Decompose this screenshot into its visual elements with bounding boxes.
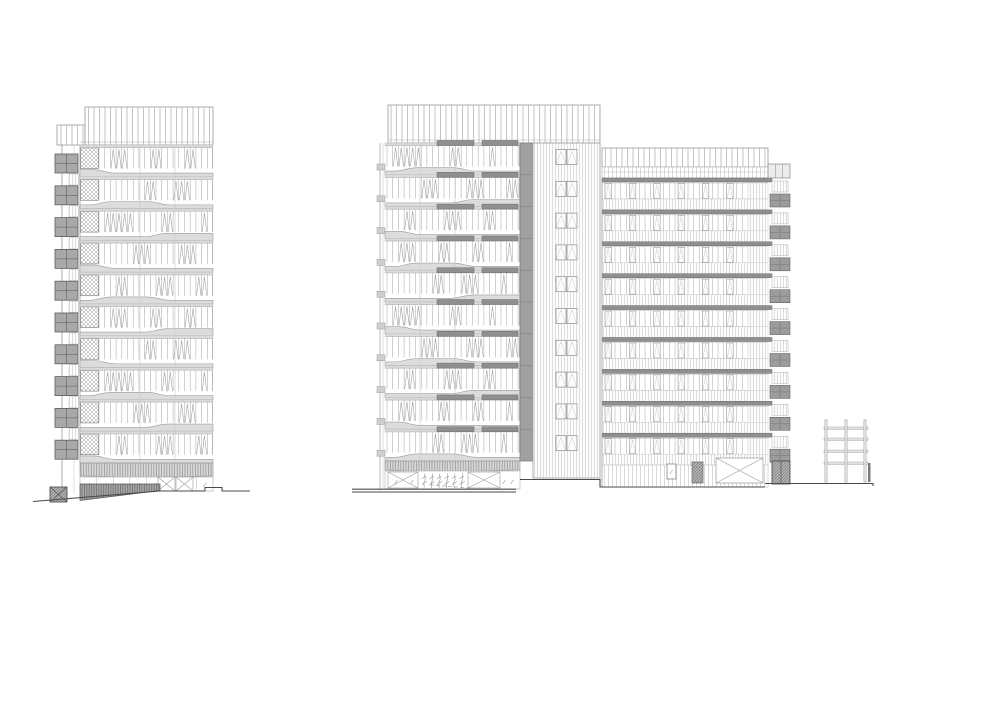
- vent-zigzag-mark: [128, 372, 133, 391]
- core-window: [556, 340, 566, 355]
- vent-zigzag-mark: [202, 213, 207, 232]
- interfloor-band: [602, 295, 768, 306]
- wavy-spandrel-band: [80, 233, 213, 240]
- vent-zigzag-mark: [450, 306, 455, 325]
- vent-zigzag-mark: [117, 308, 122, 327]
- edge-spandrel-strip: [772, 341, 788, 352]
- core-window: [556, 277, 566, 292]
- vent-zigzag-mark: [473, 179, 478, 198]
- vent-zigzag-mark: [479, 243, 484, 262]
- core-window: [556, 245, 566, 260]
- crosshatch-pier: [81, 148, 99, 169]
- floor-slab-line: [80, 431, 213, 433]
- floor-slab-line: [80, 368, 213, 370]
- side-spandrel-strip: [69, 397, 79, 408]
- dark-louver-bar: [437, 427, 474, 432]
- vent-zigzag-mark: [439, 275, 444, 294]
- core-window: [567, 150, 577, 165]
- vent-zigzag-mark: [168, 372, 173, 391]
- floor-slab-line: [80, 209, 213, 211]
- vent-zigzag-mark: [513, 338, 518, 357]
- end-pier: [748, 374, 768, 390]
- edge-tab: [377, 418, 385, 424]
- vent-zigzag-mark: [405, 402, 410, 421]
- core-window: [567, 404, 577, 419]
- dark-louver-bar: [437, 141, 474, 146]
- vent-zigzag-mark: [168, 436, 173, 455]
- vent-zigzag-mark: [117, 372, 122, 391]
- core-window: [556, 309, 566, 324]
- vent-zigzag-mark: [197, 436, 202, 455]
- vent-zigzag-mark: [410, 211, 415, 230]
- vent-zigzag-mark: [410, 370, 415, 389]
- dark-louver-bar: [482, 204, 518, 209]
- vent-zigzag-mark: [157, 308, 162, 327]
- vent-zigzag-mark: [405, 306, 410, 325]
- site-frame-structure: [824, 420, 871, 482]
- vent-zigzag-mark: [151, 149, 156, 168]
- vent-zigzag-mark: [399, 243, 404, 262]
- end-pier: [748, 311, 768, 327]
- frame-post: [845, 420, 847, 482]
- vent-zigzag-mark: [405, 243, 410, 262]
- dark-louver-bar: [437, 300, 474, 305]
- crosshatch-pier: [81, 243, 99, 264]
- vent-zigzag-mark: [399, 147, 404, 166]
- edge-spandrel-strip: [772, 245, 788, 256]
- vent-zigzag-mark: [111, 308, 116, 327]
- side-spandrel-strip: [69, 174, 79, 185]
- dark-louver-bar: [482, 427, 518, 432]
- core-window: [556, 181, 566, 196]
- edge-spandrel-strip: [772, 277, 788, 288]
- core-window: [556, 404, 566, 419]
- vent-zigzag-mark: [445, 370, 450, 389]
- dark-louver-bar: [437, 236, 474, 241]
- vent-zigzag-mark: [473, 338, 478, 357]
- vent-zigzag-mark: [122, 372, 127, 391]
- vent-zigzag-mark: [179, 340, 184, 359]
- vent-zigzag-mark: [467, 434, 472, 453]
- floor-slab-band: [602, 306, 772, 310]
- vent-zigzag-mark: [428, 179, 433, 198]
- dark-louver-bar: [437, 363, 474, 368]
- vent-zigzag-mark: [456, 370, 461, 389]
- vent-zigzag-mark: [393, 306, 398, 325]
- vent-zigzag-mark: [191, 404, 196, 423]
- vent-zigzag-mark: [197, 277, 202, 296]
- vent-zigzag-mark: [179, 404, 184, 423]
- dark-louver-bar: [437, 395, 474, 400]
- vent-zigzag-mark: [111, 372, 116, 391]
- vent-zigzag-mark: [456, 211, 461, 230]
- parapet-screen: [602, 148, 768, 167]
- service-door: [692, 462, 703, 483]
- vent-zigzag-mark: [410, 306, 415, 325]
- vent-zigzag-mark: [191, 308, 196, 327]
- floor-slab-band: [602, 401, 772, 405]
- vent-zigzag-mark: [179, 181, 184, 200]
- wavy-spandrel-band: [80, 170, 213, 177]
- vent-zigzag-mark: [507, 243, 512, 262]
- side-spandrel-strip: [69, 206, 79, 217]
- vent-zigzag-mark: [445, 402, 450, 421]
- interfloor-band: [602, 390, 768, 401]
- vent-zigzag-mark: [174, 181, 179, 200]
- core-window: [567, 309, 577, 324]
- core-window: [556, 436, 566, 451]
- vent-zigzag-mark: [479, 179, 484, 198]
- side-spandrel-strip: [69, 428, 79, 439]
- vent-zigzag-mark: [191, 149, 196, 168]
- crosshatch-pier: [81, 275, 99, 296]
- edge-tab: [377, 228, 385, 234]
- floor-slab-band: [602, 210, 772, 214]
- vent-zigzag-mark: [479, 338, 484, 357]
- vent-zigzag-mark: [117, 277, 122, 296]
- dark-louver-bar: [482, 172, 518, 177]
- vent-zigzag-mark: [134, 245, 139, 264]
- drawing-sheet: [0, 0, 1000, 707]
- vent-zigzag-mark: [117, 213, 122, 232]
- crosshatch-pier: [81, 402, 99, 423]
- interfloor-band: [602, 359, 768, 370]
- floor-slab-line: [80, 304, 213, 306]
- vent-zigzag-mark: [202, 436, 207, 455]
- left-tower-elevation: [50, 107, 213, 502]
- vent-zigzag-mark: [122, 277, 127, 296]
- core-window: [567, 181, 577, 196]
- vent-zigzag-mark: [162, 372, 167, 391]
- dark-louver-bar: [437, 331, 474, 336]
- vent-zigzag-mark: [405, 147, 410, 166]
- crosshatch-pier: [81, 370, 99, 391]
- interfloor-band: [602, 263, 768, 274]
- vent-zigzag-mark: [433, 179, 438, 198]
- vent-zigzag-mark: [122, 149, 127, 168]
- wavy-spandrel-band: [80, 392, 213, 399]
- wavy-spandrel-band: [80, 265, 213, 272]
- edge-spandrel-strip: [772, 372, 788, 383]
- middle-tower-elevation: [377, 105, 600, 489]
- core-window: [556, 213, 566, 228]
- vent-zigzag-mark: [151, 340, 156, 359]
- floor-slab-line: [80, 177, 213, 179]
- edge-tab: [377, 450, 385, 456]
- edge-tab: [377, 323, 385, 329]
- vent-zigzag-mark: [185, 245, 190, 264]
- end-pier: [748, 406, 768, 422]
- crosshatch-pier: [81, 339, 99, 360]
- crosshatch-pier: [81, 307, 99, 328]
- dark-louver-bar: [482, 268, 518, 273]
- crosshatch-pier: [81, 211, 99, 232]
- vent-zigzag-mark: [428, 338, 433, 357]
- floor-slab-band: [602, 338, 772, 342]
- vent-zigzag-mark: [162, 277, 167, 296]
- side-spandrel-strip: [69, 301, 79, 312]
- vent-zigzag-mark: [439, 402, 444, 421]
- vent-zigzag-mark: [433, 338, 438, 357]
- vent-zigzag-mark: [128, 213, 133, 232]
- elevation-canvas: [0, 0, 1000, 707]
- vent-zigzag-mark: [507, 179, 512, 198]
- vent-zigzag-mark: [405, 370, 410, 389]
- floor-slab-line: [80, 336, 213, 338]
- vent-zigzag-mark: [117, 149, 122, 168]
- end-pier: [748, 343, 768, 359]
- frame-dark-stub: [868, 463, 871, 482]
- vent-zigzag-mark: [122, 213, 127, 232]
- dark-louver-bar: [482, 141, 518, 146]
- vent-zigzag-mark: [185, 181, 190, 200]
- vent-zigzag-mark: [151, 181, 156, 200]
- top-edge-block: [768, 164, 790, 178]
- crosshatch-pier: [81, 180, 99, 201]
- interfloor-band: [602, 231, 768, 242]
- vent-zigzag-mark: [168, 277, 173, 296]
- dark-louver-bar: [437, 204, 474, 209]
- wavy-spandrel-band: [80, 424, 213, 431]
- dark-louver-bar: [482, 300, 518, 305]
- side-spandrel-strip: [69, 365, 79, 376]
- vent-zigzag-mark: [105, 213, 110, 232]
- side-spandrel-strip: [69, 269, 79, 280]
- core-window: [567, 372, 577, 387]
- vent-zigzag-mark: [456, 306, 461, 325]
- vent-zigzag-mark: [162, 436, 167, 455]
- vent-zigzag-mark: [174, 340, 179, 359]
- wavy-spandrel-band: [80, 361, 213, 368]
- side-spandrel-strip: [69, 238, 79, 249]
- wavy-spandrel-band: [80, 456, 213, 463]
- vent-zigzag-mark: [490, 211, 495, 230]
- vent-zigzag-mark: [485, 211, 490, 230]
- interfloor-band: [602, 327, 768, 338]
- vent-zigzag-mark: [473, 402, 478, 421]
- edge-tab: [377, 259, 385, 265]
- ground-line: [765, 484, 873, 487]
- rooftop-plant-screen: [85, 107, 213, 145]
- edge-tab: [377, 196, 385, 202]
- vent-zigzag-mark: [185, 308, 190, 327]
- vent-zigzag-mark: [473, 243, 478, 262]
- interfloor-band: [602, 199, 768, 210]
- frame-post: [864, 420, 866, 482]
- floor-slab-line: [80, 399, 213, 401]
- floor-slab-band: [602, 242, 772, 246]
- vent-zigzag-mark: [122, 308, 127, 327]
- vent-zigzag-mark: [151, 308, 156, 327]
- floor-slab-line: [80, 145, 213, 147]
- right-annex-elevation: [602, 148, 790, 487]
- parapet-sub-band: [602, 167, 768, 178]
- vent-zigzag-mark: [145, 245, 150, 264]
- end-pier: [748, 183, 768, 199]
- end-pier: [748, 247, 768, 263]
- vent-zigzag-mark: [422, 179, 427, 198]
- floor-slab-band: [602, 274, 772, 278]
- vent-zigzag-mark: [145, 340, 150, 359]
- edge-spandrel-strip: [772, 309, 788, 320]
- vent-zigzag-mark: [450, 211, 455, 230]
- vent-zigzag-mark: [467, 179, 472, 198]
- vent-zigzag-mark: [145, 404, 150, 423]
- vent-zigzag-mark: [162, 213, 167, 232]
- vent-zigzag-mark: [450, 147, 455, 166]
- vent-zigzag-mark: [467, 338, 472, 357]
- wavy-spandrel-band: [385, 454, 520, 461]
- edge-tab: [377, 164, 385, 170]
- core-window: [567, 213, 577, 228]
- wavy-spandrel-band: [80, 329, 213, 336]
- vent-zigzag-mark: [105, 372, 110, 391]
- vent-zigzag-mark: [490, 370, 495, 389]
- vent-zigzag-mark: [202, 372, 207, 391]
- vent-zigzag-mark: [485, 370, 490, 389]
- vent-zigzag-mark: [111, 149, 116, 168]
- floor-slab-line: [80, 240, 213, 242]
- rooftop-plant-screen: [388, 105, 600, 143]
- vent-zigzag-mark: [450, 370, 455, 389]
- dark-louver-bar: [482, 363, 518, 368]
- crosshatch-pier: [81, 434, 99, 455]
- frame-post: [825, 420, 827, 482]
- vent-zigzag-mark: [473, 275, 478, 294]
- vent-zigzag-mark: [502, 275, 507, 294]
- end-pier: [748, 279, 768, 295]
- vent-zigzag-mark: [479, 402, 484, 421]
- vent-zigzag-mark: [202, 277, 207, 296]
- vent-zigzag-mark: [168, 213, 173, 232]
- floor-slab-band: [602, 433, 772, 437]
- vent-zigzag-mark: [490, 147, 495, 166]
- dark-louver-bar: [437, 268, 474, 273]
- dark-louver-bar: [437, 172, 474, 177]
- vent-zigzag-mark: [111, 213, 116, 232]
- wavy-spandrel-band: [80, 297, 213, 304]
- end-pier: [748, 215, 768, 231]
- vent-zigzag-mark: [410, 243, 415, 262]
- vent-zigzag-mark: [445, 243, 450, 262]
- core-window: [567, 277, 577, 292]
- edge-spandrel-strip: [772, 436, 788, 447]
- core-window: [556, 150, 566, 165]
- vent-zigzag-mark: [179, 245, 184, 264]
- vent-zigzag-mark: [445, 211, 450, 230]
- vent-zigzag-mark: [507, 338, 512, 357]
- vent-zigzag-mark: [393, 147, 398, 166]
- vent-zigzag-mark: [473, 434, 478, 453]
- core-window: [567, 436, 577, 451]
- vent-zigzag-mark: [490, 306, 495, 325]
- end-pier: [748, 438, 768, 454]
- vent-zigzag-mark: [134, 404, 139, 423]
- dark-louver-bar: [482, 236, 518, 241]
- core-window: [556, 372, 566, 387]
- edge-spandrel-strip: [772, 404, 788, 415]
- vent-zigzag-mark: [122, 436, 127, 455]
- core-window: [567, 340, 577, 355]
- vent-zigzag-mark: [502, 434, 507, 453]
- vent-zigzag-mark: [185, 149, 190, 168]
- vent-zigzag-mark: [405, 211, 410, 230]
- vent-zigzag-mark: [439, 434, 444, 453]
- vent-zigzag-mark: [456, 147, 461, 166]
- wavy-spandrel-band: [80, 202, 213, 209]
- vent-zigzag-mark: [145, 181, 150, 200]
- vent-zigzag-mark: [185, 340, 190, 359]
- stair-core-cladding: [533, 143, 600, 478]
- floor-slab-band: [602, 369, 772, 373]
- floor-slab-band: [602, 178, 772, 182]
- edge-tab: [377, 355, 385, 361]
- vent-zigzag-mark: [422, 338, 427, 357]
- side-spandrel-strip: [69, 333, 79, 344]
- floor-slab-line: [80, 272, 213, 274]
- vent-zigzag-mark: [433, 434, 438, 453]
- vent-zigzag-mark: [462, 275, 467, 294]
- vent-zigzag-mark: [410, 402, 415, 421]
- vent-zigzag-mark: [185, 404, 190, 423]
- vent-zigzag-mark: [157, 149, 162, 168]
- edge-spandrel-strip: [772, 181, 788, 192]
- vent-zigzag-mark: [191, 245, 196, 264]
- vent-zigzag-mark: [513, 179, 518, 198]
- vent-zigzag-mark: [399, 306, 404, 325]
- interfloor-band: [602, 422, 768, 433]
- vent-zigzag-mark: [462, 434, 467, 453]
- vent-zigzag-mark: [410, 147, 415, 166]
- vent-zigzag-mark: [433, 275, 438, 294]
- vent-zigzag-mark: [157, 436, 162, 455]
- edge-tab: [377, 387, 385, 393]
- vent-zigzag-mark: [507, 402, 512, 421]
- vent-zigzag-mark: [399, 402, 404, 421]
- edge-tab: [377, 291, 385, 297]
- vent-zigzag-mark: [467, 275, 472, 294]
- dark-louver-bar: [482, 331, 518, 336]
- vent-zigzag-mark: [157, 277, 162, 296]
- dark-louver-bar: [482, 395, 518, 400]
- core-window: [567, 245, 577, 260]
- vent-zigzag-mark: [439, 243, 444, 262]
- vent-zigzag-mark: [117, 436, 122, 455]
- edge-spandrel-strip: [772, 213, 788, 224]
